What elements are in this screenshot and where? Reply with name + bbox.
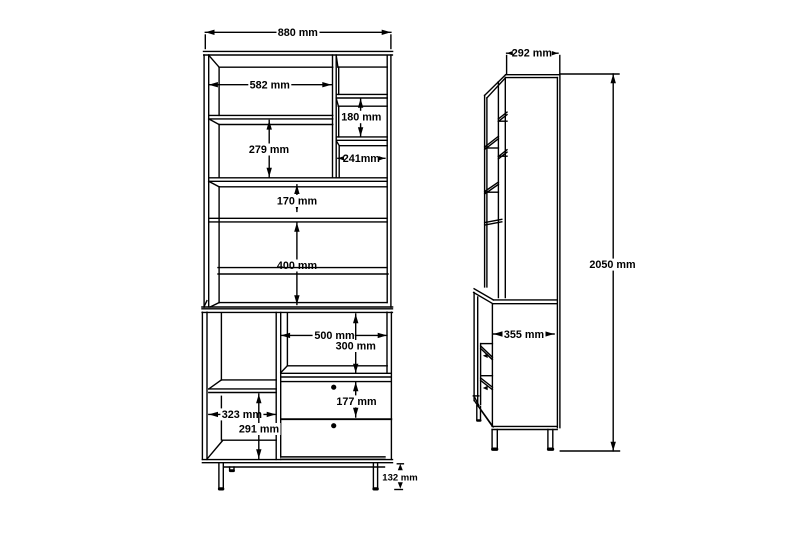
svg-text:279 mm: 279 mm: [249, 144, 289, 156]
svg-text:291 mm: 291 mm: [239, 424, 279, 436]
svg-text:323 mm: 323 mm: [222, 409, 262, 421]
svg-text:132 mm: 132 mm: [382, 472, 417, 483]
svg-text:300 mm: 300 mm: [336, 340, 376, 352]
svg-text:2050 mm: 2050 mm: [589, 259, 635, 271]
svg-text:880 mm: 880 mm: [278, 27, 318, 39]
svg-text:180 mm: 180 mm: [341, 112, 381, 124]
svg-text:170 mm: 170 mm: [277, 196, 317, 208]
svg-text:241mm: 241mm: [343, 153, 380, 165]
svg-text:177 mm: 177 mm: [336, 396, 376, 408]
svg-text:292 mm: 292 mm: [512, 48, 552, 60]
svg-text:582 mm: 582 mm: [250, 79, 290, 91]
svg-text:400 mm: 400 mm: [277, 260, 317, 272]
svg-text:355 mm: 355 mm: [504, 329, 544, 341]
